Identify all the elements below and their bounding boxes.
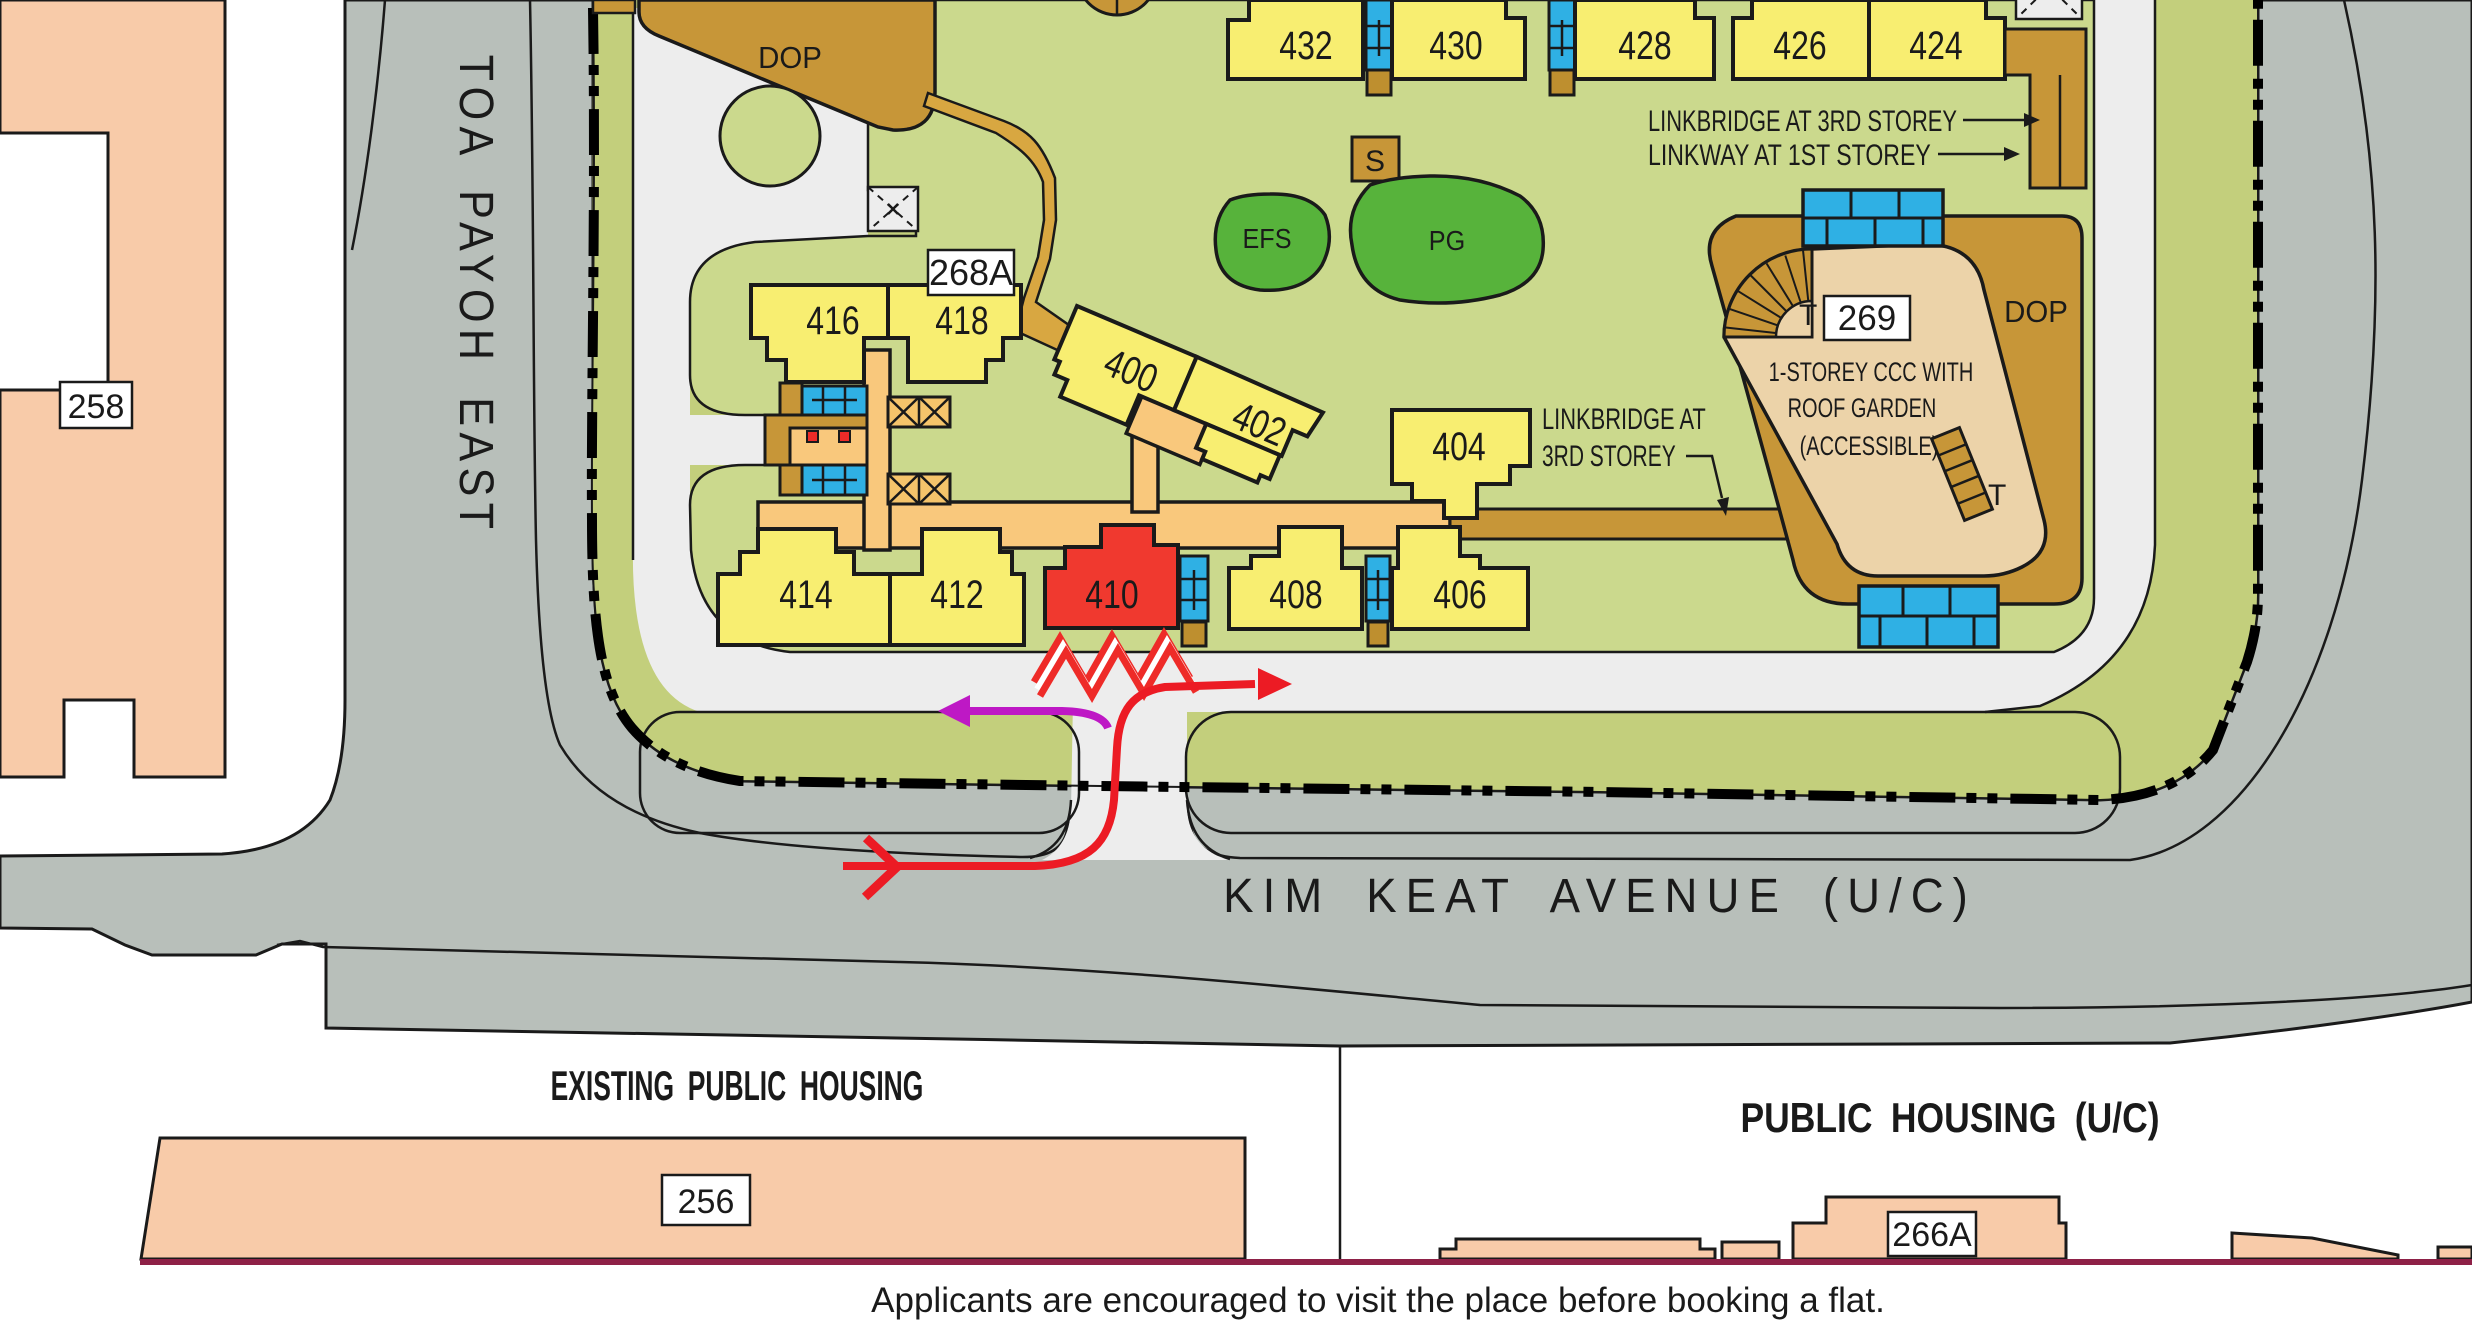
svg-text:424: 424: [1909, 23, 1962, 68]
svg-text:1-STOREY CCC WITH: 1-STOREY CCC WITH: [1769, 357, 1974, 388]
svg-text:ROOF GARDEN: ROOF GARDEN: [1788, 393, 1937, 424]
svg-text:404: 404: [1432, 424, 1485, 469]
svg-text:268A: 268A: [929, 252, 1013, 293]
svg-text:DOP: DOP: [758, 41, 822, 75]
svg-text:418: 418: [935, 298, 988, 343]
svg-text:T: T: [1988, 479, 2006, 512]
svg-text:EXISTING PUBLIC HOUSING: EXISTING PUBLIC HOUSING: [551, 1063, 924, 1110]
svg-text:TOA PAYOH EAST: TOA PAYOH EAST: [449, 55, 503, 536]
svg-text:PUBLIC HOUSING (U/C): PUBLIC HOUSING (U/C): [1740, 1095, 2159, 1141]
svg-text:Applicants are encouraged to v: Applicants are encouraged to visit the p…: [871, 1281, 1885, 1320]
svg-text:412: 412: [930, 572, 983, 617]
svg-text:256: 256: [678, 1183, 735, 1221]
svg-text:(ACCESSIBLE): (ACCESSIBLE): [1800, 431, 1939, 462]
svg-text:428: 428: [1618, 23, 1671, 68]
svg-text:LINKWAY AT 1ST STOREY: LINKWAY AT 1ST STOREY: [1648, 138, 1931, 172]
svg-text:EFS: EFS: [1243, 223, 1292, 255]
svg-text:408: 408: [1269, 572, 1322, 617]
svg-text:406: 406: [1433, 572, 1486, 617]
svg-text:S: S: [1365, 145, 1385, 178]
svg-text:LINKBRIDGE AT: LINKBRIDGE AT: [1542, 402, 1706, 436]
svg-text:426: 426: [1773, 23, 1826, 68]
svg-text:T: T: [1799, 299, 1817, 332]
svg-text:410: 410: [1085, 572, 1138, 617]
svg-text:269: 269: [1838, 299, 1896, 338]
svg-text:3RD STOREY: 3RD STOREY: [1542, 441, 1676, 473]
svg-text:258: 258: [68, 388, 125, 426]
svg-text:432: 432: [1279, 23, 1332, 68]
svg-text:DOP: DOP: [2004, 295, 2068, 329]
svg-text:416: 416: [806, 298, 859, 343]
svg-text:KIM KEAT AVENUE (U/C): KIM KEAT AVENUE (U/C): [1223, 869, 1977, 922]
svg-text:414: 414: [779, 572, 832, 617]
svg-text:LINKBRIDGE AT 3RD STOREY: LINKBRIDGE AT 3RD STOREY: [1648, 104, 1957, 138]
svg-text:266A: 266A: [1892, 1216, 1972, 1254]
svg-text:430: 430: [1429, 23, 1482, 68]
svg-text:PG: PG: [1429, 225, 1465, 257]
